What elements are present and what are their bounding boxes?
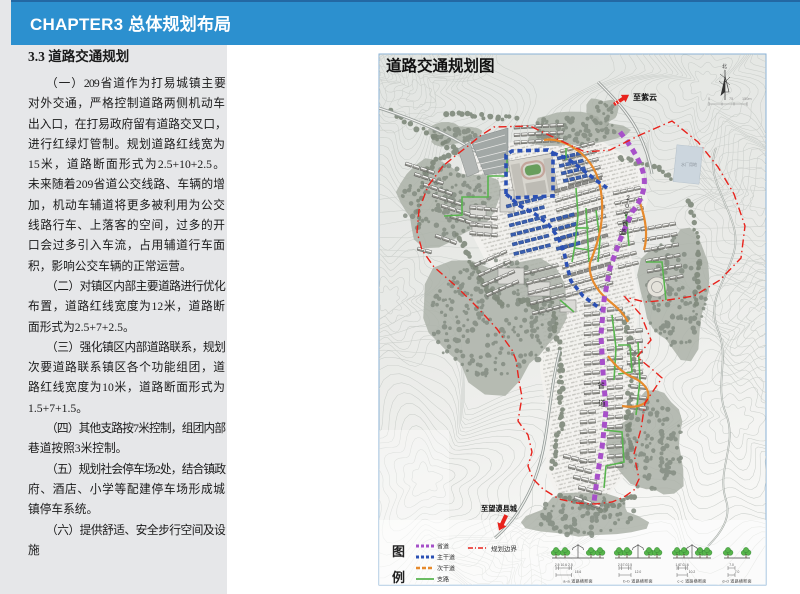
svg-text:d-d 道路横断面: d-d 道路横断面 (722, 578, 752, 584)
svg-text:12.0: 12.0 (635, 570, 642, 574)
svg-text:10.2: 10.2 (689, 570, 696, 574)
svg-text:c-c 道路横断面: c-c 道路横断面 (677, 578, 706, 584)
svg-text:b-b 道路横断面: b-b 道路横断面 (623, 578, 653, 584)
svg-text:a-a 道路横断面: a-a 道路横断面 (563, 578, 593, 584)
svg-text:7.0: 7.0 (729, 563, 734, 567)
svg-text:2.5: 2.5 (555, 563, 560, 567)
svg-text:10.6: 10.6 (561, 563, 568, 567)
svg-text:2.5: 2.5 (568, 563, 573, 567)
svg-text:1.6: 1.6 (684, 563, 689, 567)
svg-text:15.6: 15.6 (575, 570, 582, 574)
svg-text:7.0: 7.0 (735, 570, 740, 574)
svg-text:2.5: 2.5 (628, 563, 633, 567)
